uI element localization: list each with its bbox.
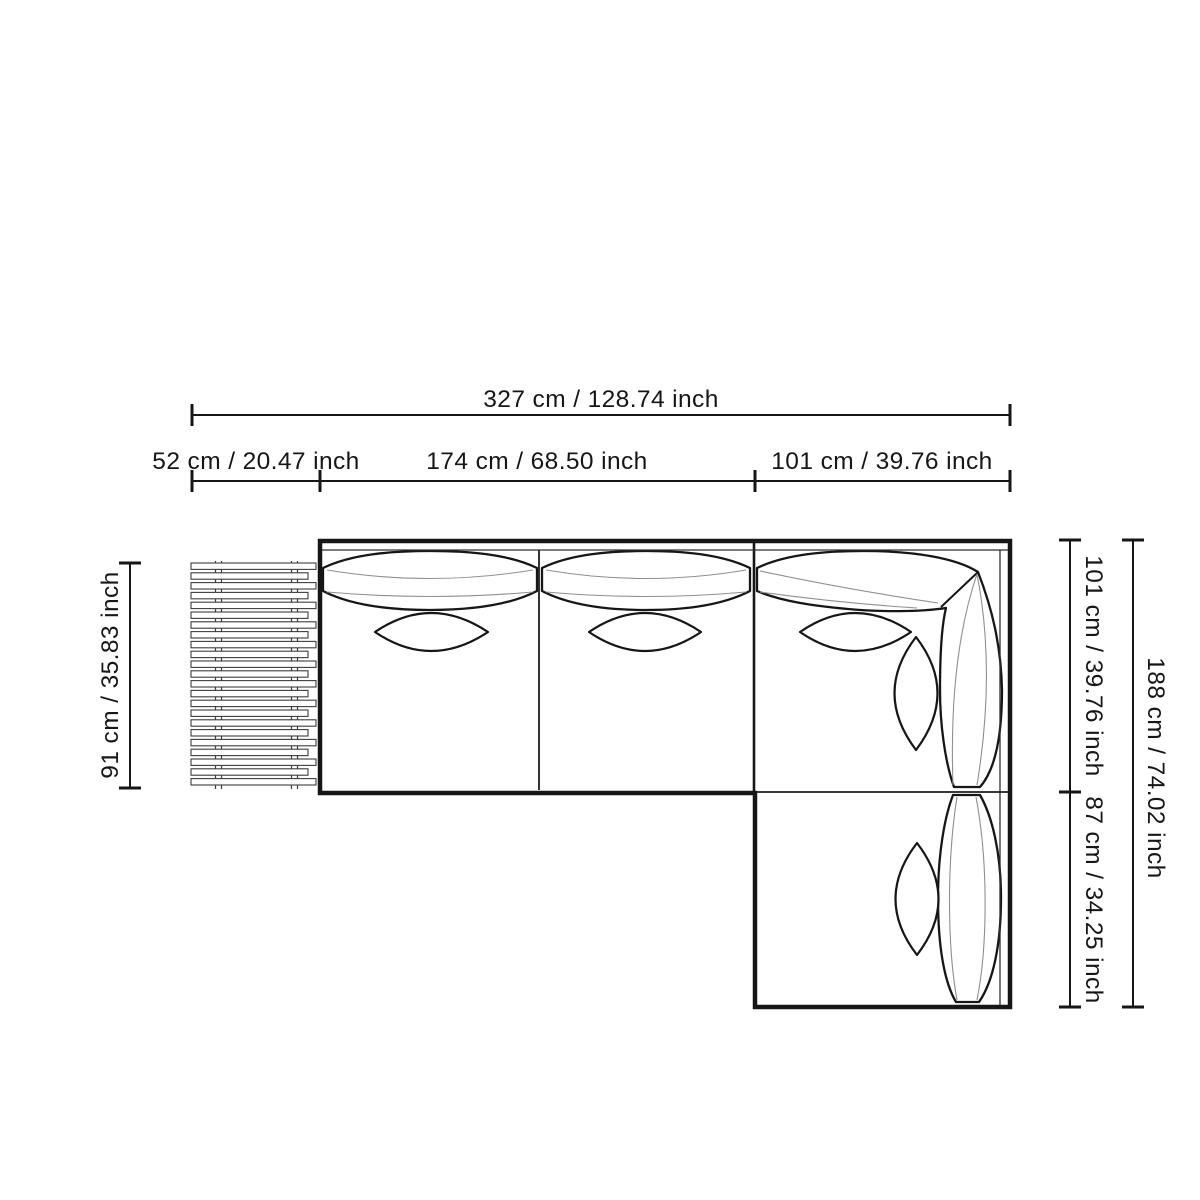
back-cushion-left (323, 551, 537, 610)
side-table-width-label: 52 cm / 20.47 inch (152, 448, 359, 475)
slat-table (191, 561, 316, 789)
dimension-right-inner: 101 cm / 39.76 inch 87 cm / 34.25 inch (1059, 540, 1107, 1007)
table-slat (191, 583, 316, 589)
table-slat (191, 710, 308, 716)
table-slat (191, 612, 308, 618)
overall-width-label: 327 cm / 128.74 inch (483, 386, 718, 413)
dimension-side-table-depth: 91 cm / 35.83 inch (97, 563, 141, 788)
side-table-depth-label: 91 cm / 35.83 inch (97, 571, 124, 778)
side-pillow-chaise (896, 843, 939, 955)
table-slat (191, 769, 308, 775)
corner-section-width-label: 101 cm / 39.76 inch (771, 448, 992, 475)
table-slat (191, 759, 316, 765)
table-slat (191, 720, 316, 726)
dimension-width-segments: 52 cm / 20.47 inch 174 cm / 68.50 inch 1… (152, 448, 1010, 492)
overall-depth-label: 188 cm / 74.02 inch (1142, 657, 1169, 878)
table-slat (191, 622, 316, 628)
seat-section-width-label: 174 cm / 68.50 inch (426, 448, 647, 475)
table-slat (191, 602, 316, 608)
table-slat (191, 592, 308, 598)
sofa-dimension-diagram: 327 cm / 128.74 inch 52 cm / 20.47 inch … (0, 0, 1200, 1200)
table-slat (191, 632, 308, 638)
sofa-depth-label: 101 cm / 39.76 inch (1080, 555, 1107, 776)
back-cushion (938, 795, 1001, 1002)
table-slat (191, 671, 308, 677)
sofa-plan (320, 541, 1010, 1007)
dimension-overall-depth: 188 cm / 74.02 inch (1122, 540, 1169, 1007)
table-slat (191, 563, 316, 569)
dimension-overall-width: 327 cm / 128.74 inch (192, 386, 1010, 426)
table-slat (191, 681, 316, 687)
table-slat (191, 779, 316, 785)
table-slat (191, 749, 308, 755)
back-cushion (757, 551, 1002, 787)
seat-pillow-corner (800, 613, 911, 651)
back-cushion-chaise (938, 795, 1001, 1002)
table-slat (191, 661, 316, 667)
table-slat (191, 730, 308, 736)
seat-pillow-left (375, 613, 488, 651)
back-cushion (542, 551, 750, 610)
table-slat (191, 690, 308, 696)
table-slat (191, 651, 308, 657)
table-slat (191, 739, 316, 745)
table-slat (191, 573, 308, 579)
chaise-extension-depth-label: 87 cm / 34.25 inch (1080, 796, 1107, 1003)
seat-pillow-middle (589, 613, 701, 651)
back-cushion-middle (542, 551, 750, 610)
back-cushion (323, 551, 537, 610)
table-slat (191, 700, 316, 706)
table-slat (191, 641, 316, 647)
side-pillow-corner (895, 637, 938, 750)
back-cushion-corner (757, 551, 1002, 787)
